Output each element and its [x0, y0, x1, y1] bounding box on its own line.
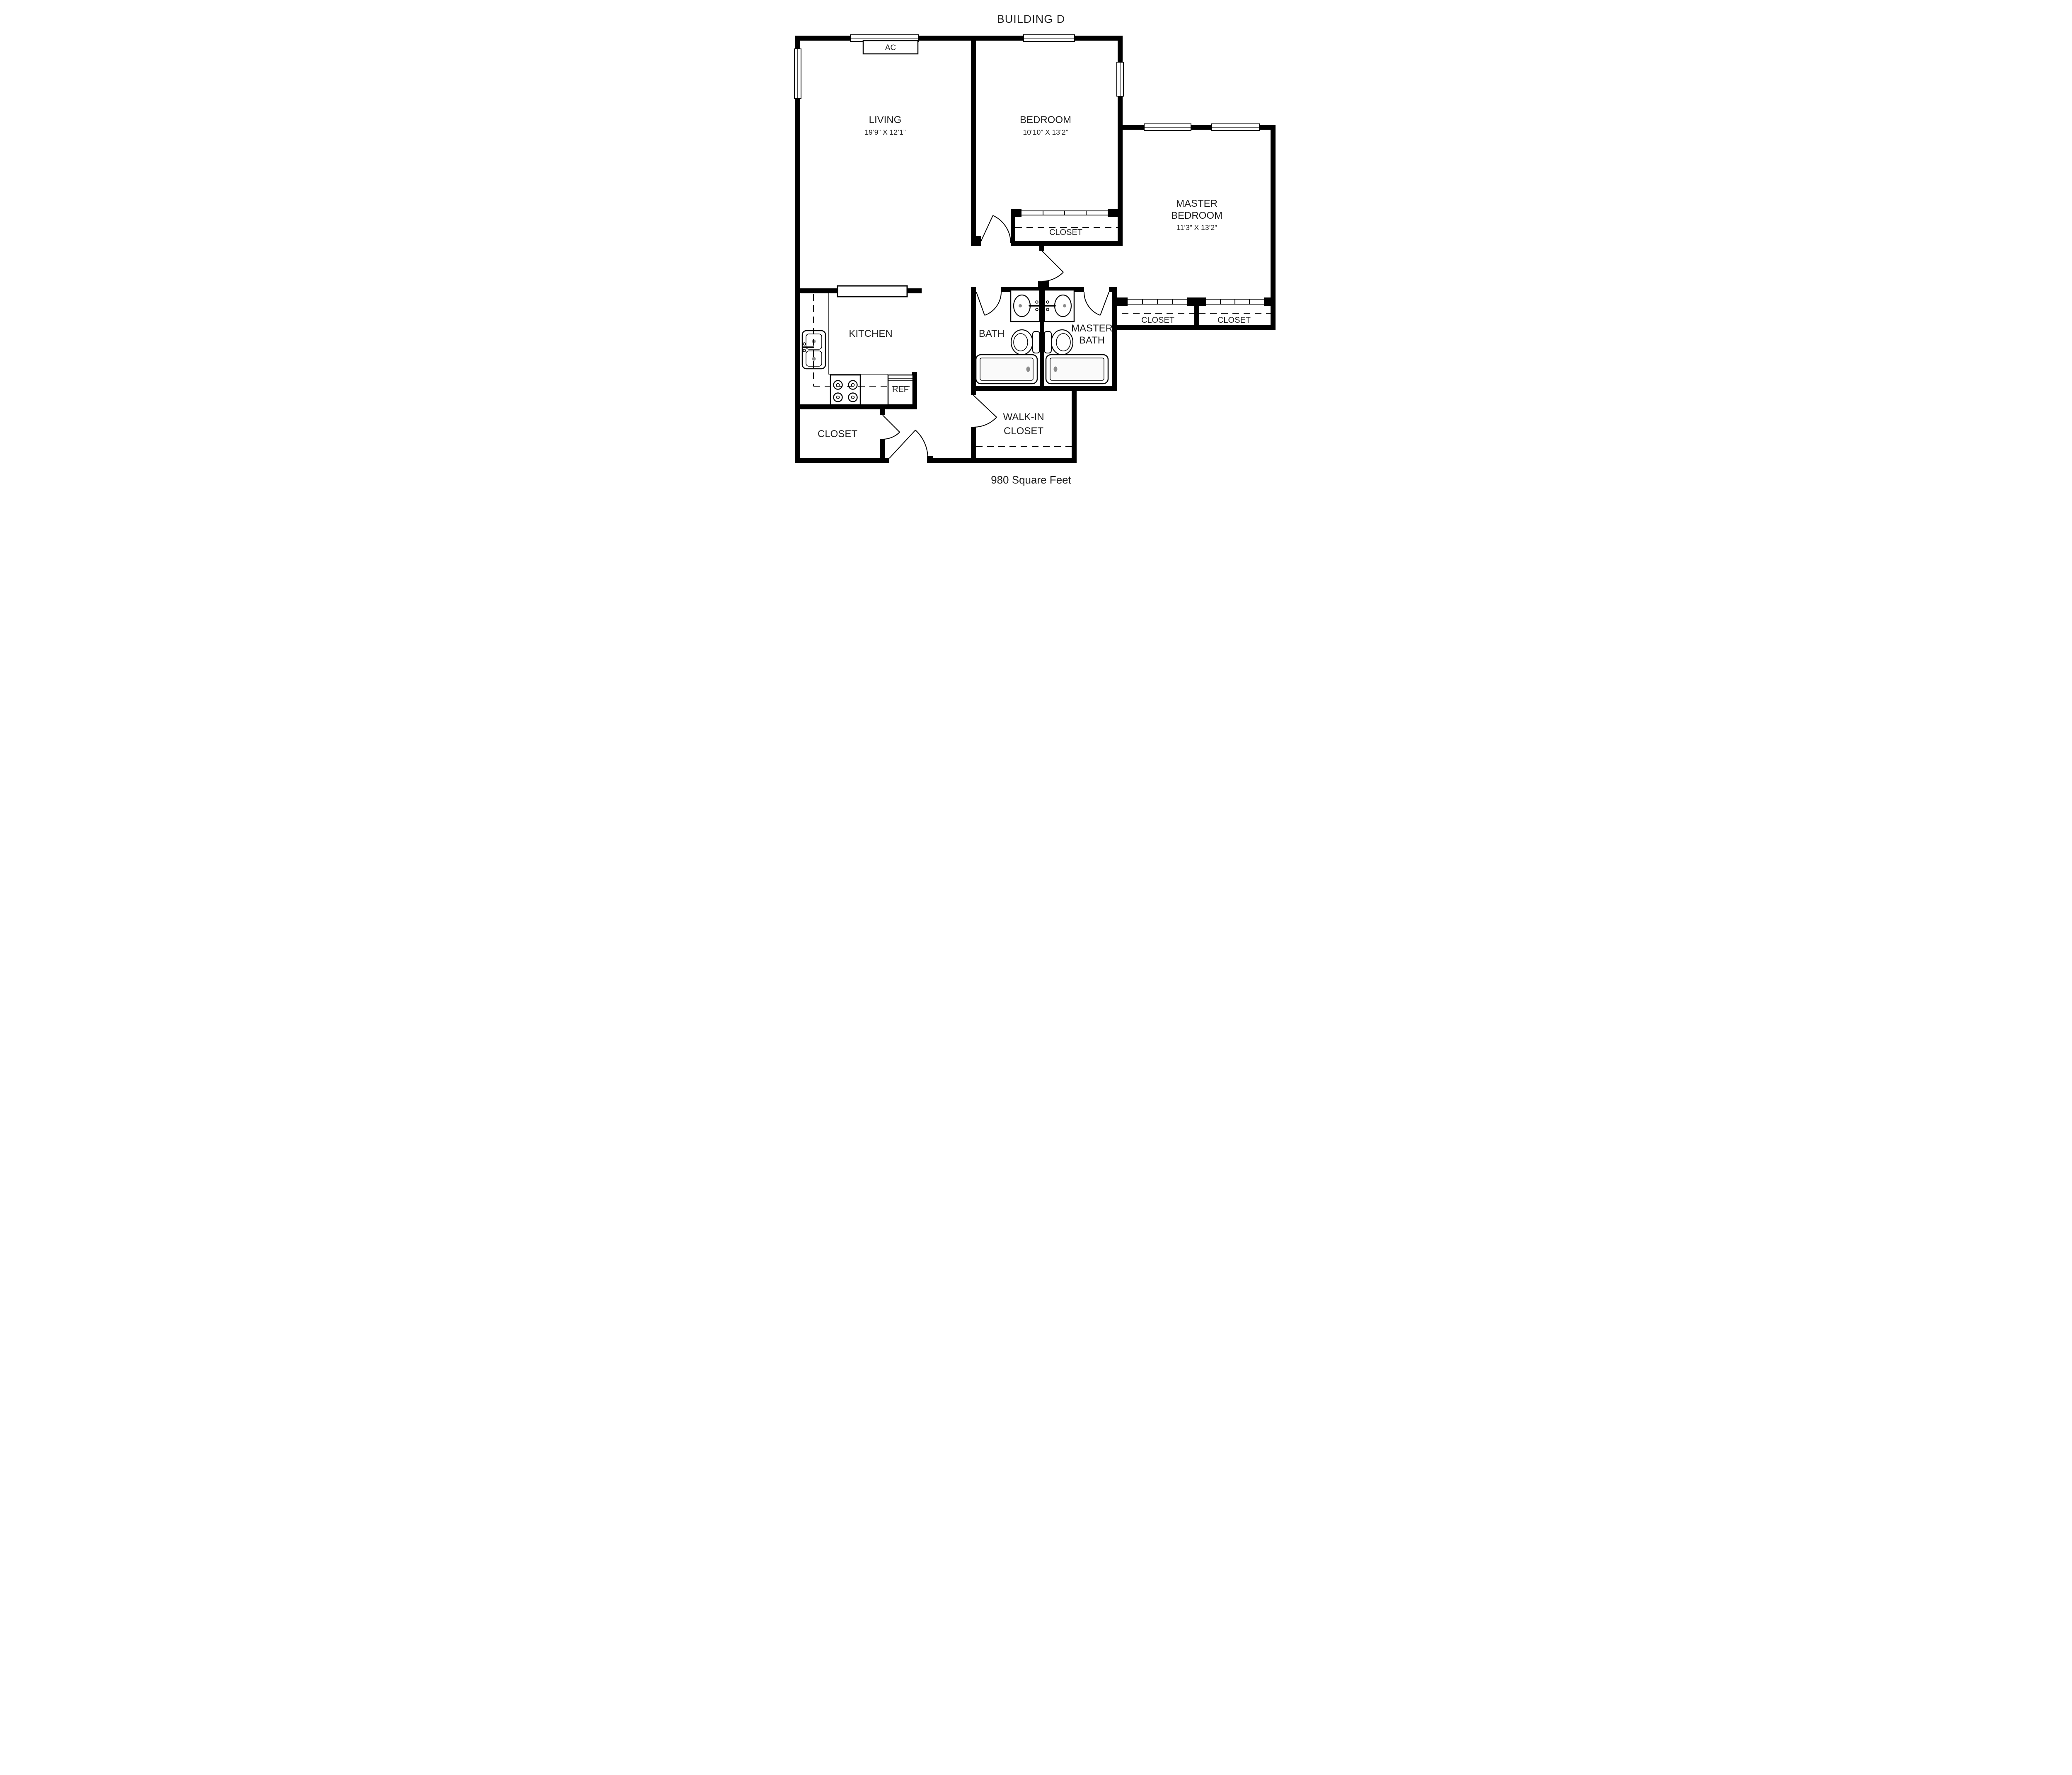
master-closet-track-post-center — [1187, 297, 1206, 306]
master-bath-label-line2: BATH — [1079, 335, 1105, 346]
master-bedroom-label-line1: MASTER — [1176, 198, 1218, 209]
bath-tub — [976, 355, 1037, 384]
ac-unit: AC — [863, 41, 918, 54]
wall-hallway-north — [1011, 241, 1123, 246]
kitchen-pass-through — [838, 286, 907, 297]
wall-bedroom-west — [971, 36, 976, 242]
window-bedroom-top — [1024, 35, 1075, 41]
master-bedroom-dims: 11’3” X 13’2” — [1176, 223, 1217, 232]
master-bath-toilet — [1044, 330, 1073, 355]
wall-closets-divider — [1194, 306, 1199, 325]
bath-label: BATH — [979, 328, 1005, 339]
bedroom-closet-track-post-left — [1011, 209, 1021, 217]
ac-label: AC — [885, 44, 896, 52]
bedroom-door-jamb — [971, 236, 981, 246]
entry-closet-label: CLOSET — [818, 428, 857, 440]
living-label: LIVING — [869, 114, 902, 126]
entry-door — [889, 430, 928, 458]
counter-edge-left — [829, 293, 830, 374]
wall-kitchen-top-west — [795, 288, 839, 293]
floor-plan-canvas: BUILDING D 980 Square Feet — [711, 0, 1361, 502]
master-closet-right-label: CLOSET — [1218, 316, 1251, 325]
window-master-top-left — [1144, 124, 1191, 131]
page-title: BUILDING D — [997, 13, 1065, 25]
stove — [830, 374, 861, 405]
wall-baths-top-east — [1109, 287, 1117, 292]
wall-baths-bottom — [971, 386, 1117, 391]
wall-bottom-left — [795, 458, 889, 463]
bedroom-closet-sliding-doors — [1021, 211, 1108, 215]
wall-kitchen-top-east — [906, 288, 922, 293]
refrigerator: REF — [888, 375, 913, 405]
walls — [795, 36, 1276, 463]
bedroom-label: BEDROOM — [1020, 114, 1071, 126]
window-master-top-right — [1211, 124, 1259, 131]
wall-bath-divider — [1040, 292, 1044, 386]
master-bath-label-line1: MASTER — [1071, 323, 1113, 334]
window-living-left — [794, 49, 801, 99]
walk-in-closet-label-line2: CLOSET — [1004, 426, 1043, 437]
wall-left — [795, 36, 800, 463]
bedroom-closet-label: CLOSET — [1049, 228, 1082, 237]
master-closet-track-post-right — [1264, 297, 1276, 306]
wall-walkin-west — [971, 427, 976, 458]
bedroom-closet-track-post-right — [1108, 209, 1118, 217]
wall-baths-west — [971, 287, 976, 395]
master-bath-tub — [1046, 355, 1108, 384]
bath-toilet — [1011, 330, 1040, 355]
master-closet-left-label: CLOSET — [1141, 316, 1174, 325]
master-bedroom-label-line2: BEDROOM — [1171, 210, 1222, 221]
bath-door — [976, 292, 1001, 315]
window-bedroom-right — [1117, 62, 1123, 96]
entry-closet-door — [883, 415, 900, 439]
kitchen-fixtures: REF — [802, 293, 913, 405]
master-bath-vanity-sink — [1044, 290, 1074, 322]
square-footage-label: 980 Square Feet — [991, 474, 1071, 486]
kitchen-label: KITCHEN — [849, 328, 892, 339]
living-dims: 19’9” X 12’1” — [864, 128, 905, 136]
master-closet-track-post-left — [1117, 297, 1128, 306]
walk-in-closet-label-line1: WALK-IN — [1003, 411, 1044, 423]
wall-entry-closet-right — [880, 439, 885, 463]
master-bedroom-door — [1042, 251, 1063, 281]
master-closet-left-sliding-doors — [1128, 299, 1187, 304]
bedroom-door — [980, 215, 1011, 243]
room-labels: LIVING 19’9” X 12’1” BEDROOM 10’10” X 13… — [818, 114, 1251, 440]
wall-master-door-stub-top — [1039, 246, 1044, 251]
master-closet-right-sliding-doors — [1206, 299, 1264, 304]
wall-entry-closet-stub — [880, 409, 885, 415]
wall-walkin-right — [1072, 386, 1077, 463]
master-bath-door — [1084, 292, 1109, 315]
wall-closets-bottom — [1117, 325, 1276, 330]
floor-plan-page: BUILDING D 980 Square Feet — [711, 0, 1361, 502]
wall-master-bath-right — [1112, 289, 1117, 391]
wall-bottom-center — [928, 458, 1077, 463]
windows — [794, 35, 1259, 297]
walk-in-closet-door — [973, 395, 997, 427]
bedroom-dims: 10’10” X 13’2” — [1023, 128, 1068, 136]
bath-vanity-sink — [1011, 290, 1040, 322]
